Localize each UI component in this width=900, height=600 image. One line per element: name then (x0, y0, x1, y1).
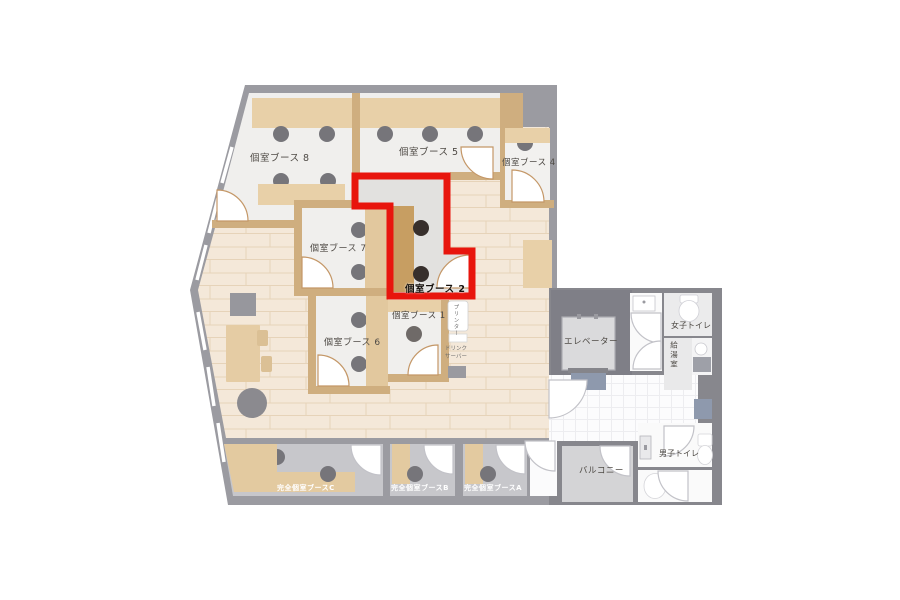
booth-6-label: 個室ブース 6 (324, 339, 381, 348)
kitchenette-label: 給湯室 (670, 341, 678, 370)
booth-C-label: 完全個室ブースC (277, 485, 335, 492)
balcony-label: バルコニー (579, 467, 624, 476)
booth-8-label: 個室ブース 8 (250, 154, 310, 164)
drink-server-label-line1: ドリンク (445, 347, 467, 353)
mens-toilet-label: 男子トイレ (659, 450, 699, 458)
booth-1-label: 個室ブース 1 (392, 312, 446, 321)
labels-layer: 個室ブース 8 個室ブース 5 個室ブース 4 個室ブース 7 個室ブース 2 … (0, 0, 900, 600)
floor-plan: 個室ブース 8 個室ブース 5 個室ブース 4 個室ブース 7 個室ブース 2 … (0, 0, 900, 600)
booth-7-label: 個室ブース 7 (310, 245, 367, 254)
booth-5-label: 個室ブース 5 (399, 148, 459, 158)
womens-toilet-label: 女子トイレ (671, 322, 711, 330)
booth-2-label: 個室ブース 2 (405, 285, 465, 295)
printer-label: プリンター (452, 304, 458, 337)
drink-server-label-line2: サーバー (445, 355, 467, 361)
elevator-label: エレベーター (564, 338, 618, 347)
booth-A-label: 完全個室ブースA (464, 485, 522, 492)
booth-B-label: 完全個室ブースB (391, 485, 449, 492)
booth-4-label: 個室ブース 4 (502, 159, 556, 168)
